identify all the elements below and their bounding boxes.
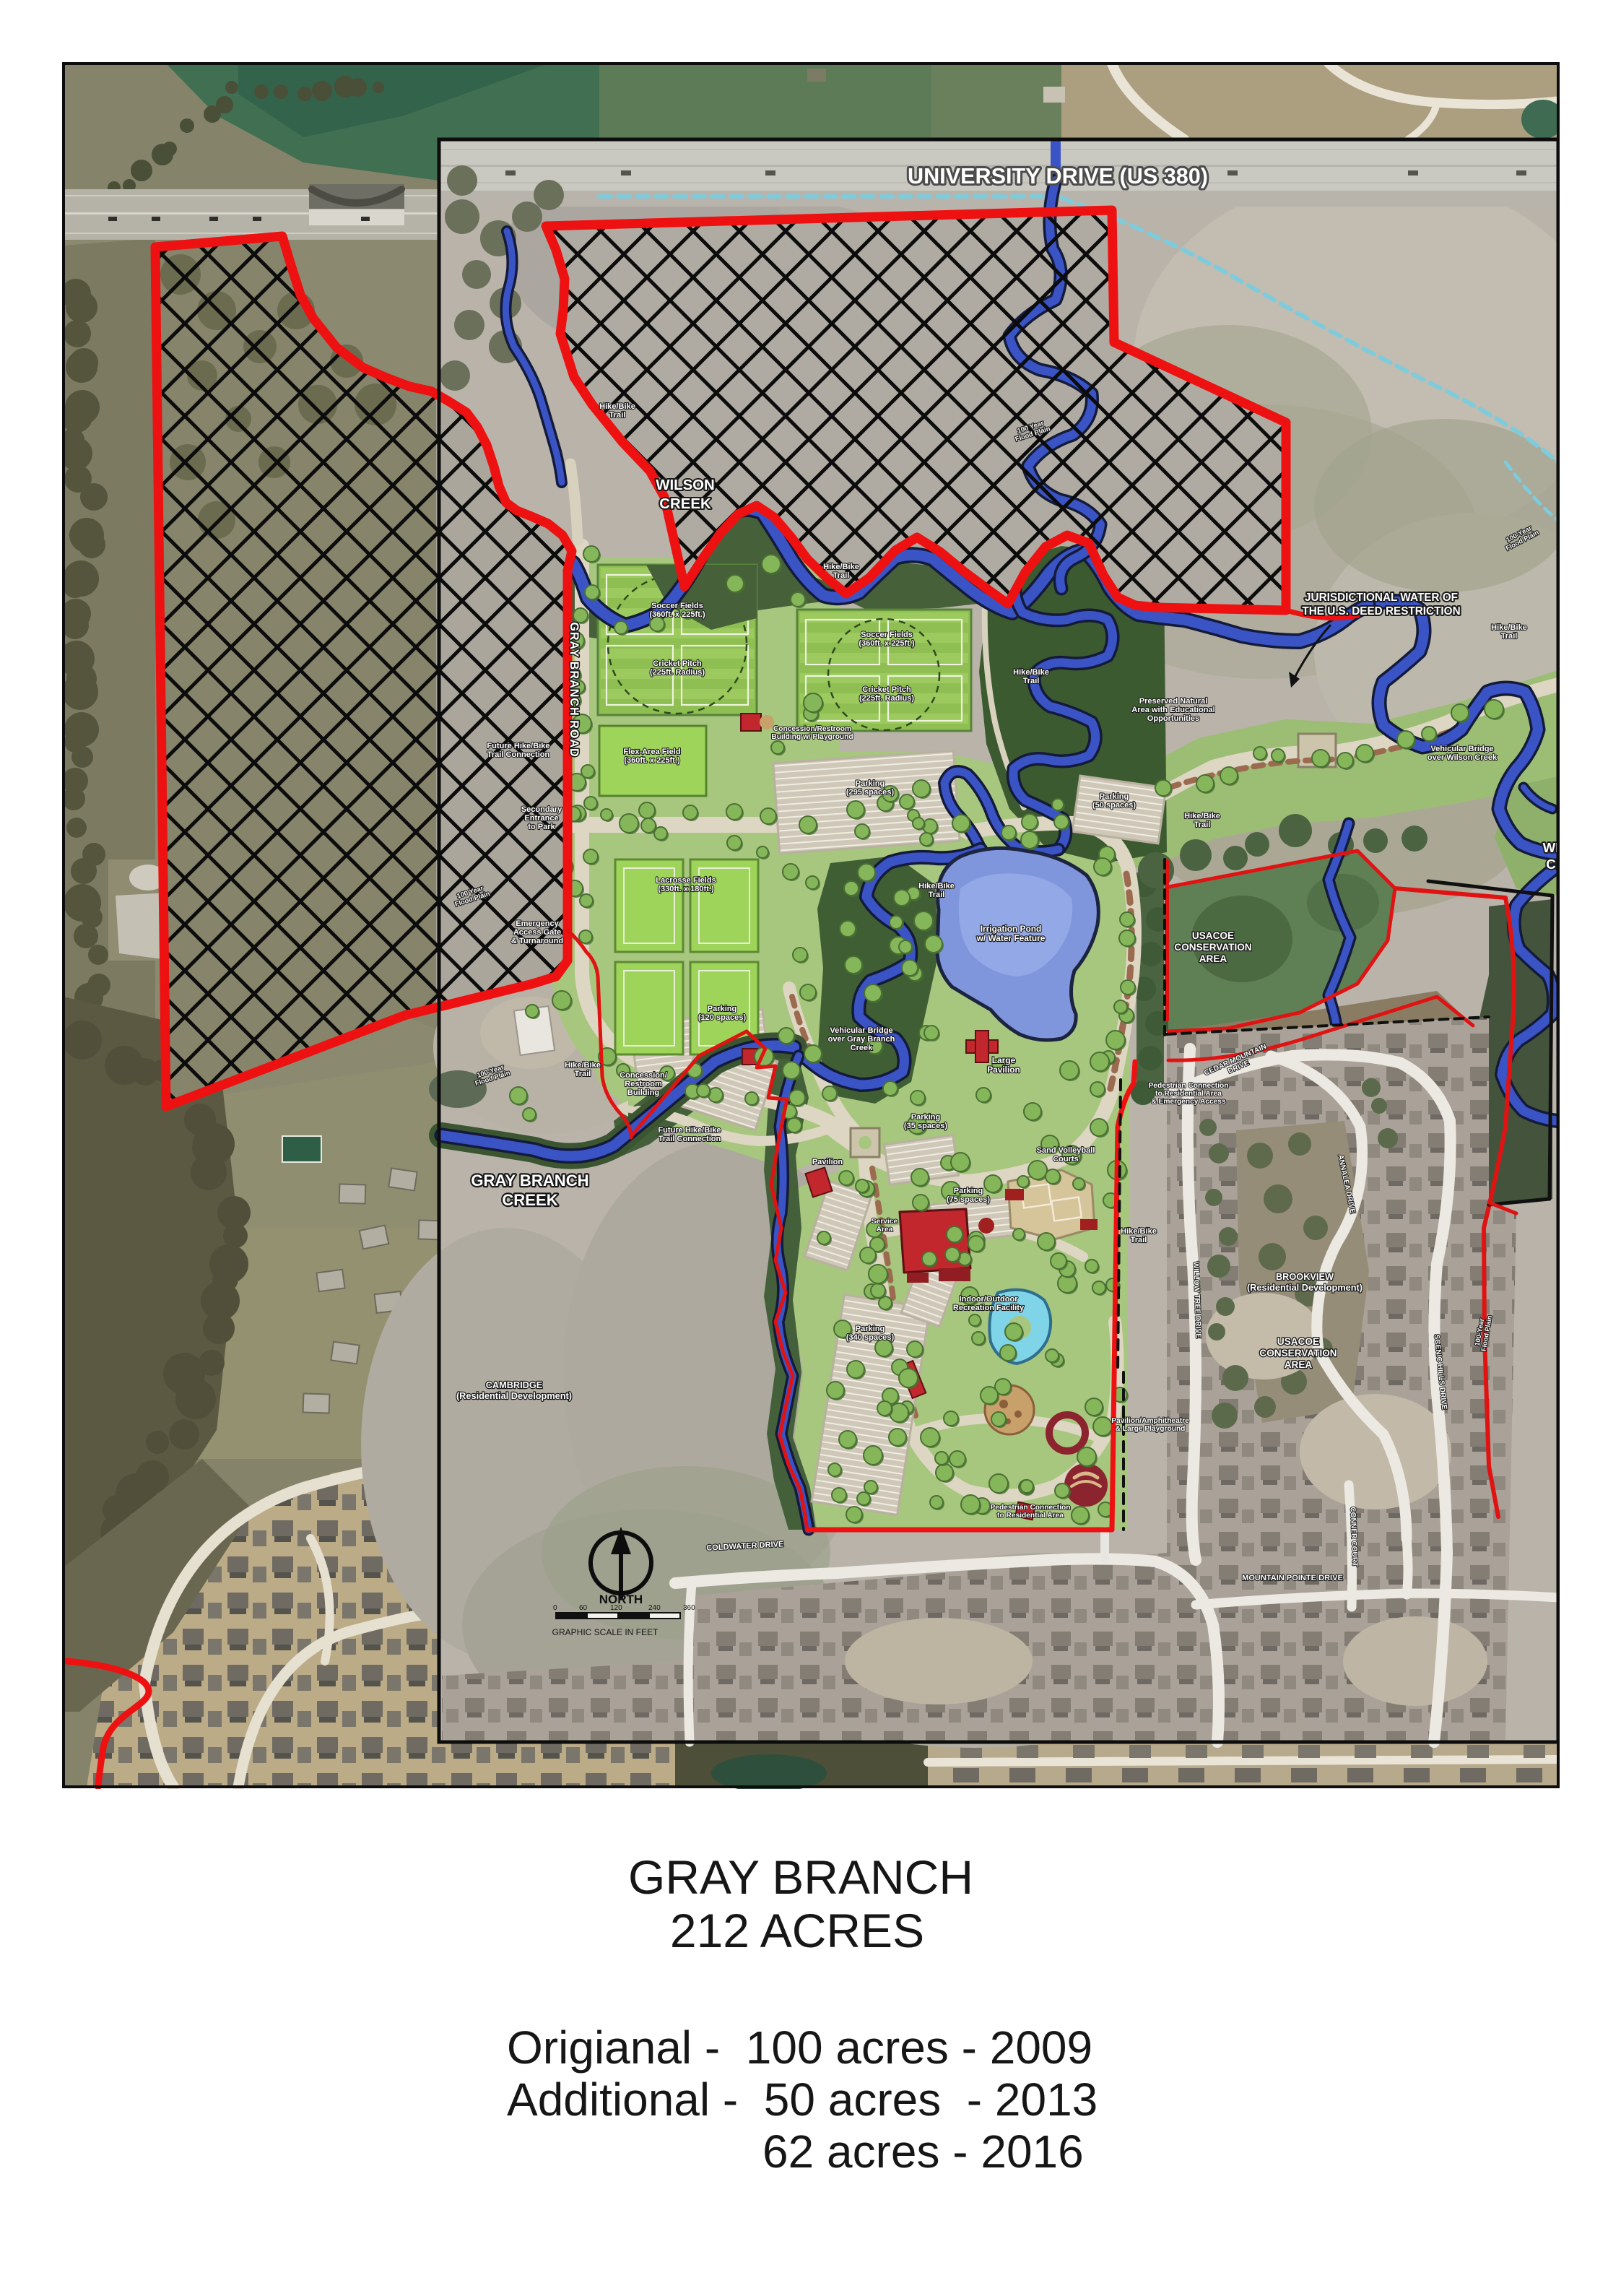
svg-text:60: 60: [579, 1604, 588, 1612]
svg-text:Origianal - 100 acres - 2009: Origianal - 100 acres - 2009: [507, 2022, 1092, 2074]
svg-text:MOUNTAIN POINTE DRIVE: MOUNTAIN POINTE DRIVE: [1242, 1574, 1343, 1582]
svg-text:Vehicular Bridgeover Wilson Cr: Vehicular Bridgeover Wilson Creek: [1427, 745, 1498, 762]
svg-text:Additional - 50 acres - 2013: Additional - 50 acres - 2013: [507, 2074, 1098, 2126]
svg-text:Irrigation Pondw/ Water Featur: Irrigation Pondw/ Water Feature: [976, 924, 1046, 943]
svg-text:GRAY BRANCH: GRAY BRANCH: [628, 1850, 973, 1904]
svg-text:GRAPHIC SCALE IN FEET: GRAPHIC SCALE IN FEET: [552, 1627, 659, 1637]
svg-text:212 ACRES: 212 ACRES: [670, 1904, 924, 1957]
svg-text:62 acres - 2016: 62 acres - 2016: [762, 2126, 1084, 2178]
svg-text:Soccer Fields(360ft. x 225ft.): Soccer Fields(360ft. x 225ft.): [859, 631, 915, 648]
svg-text:Future Hike/BikeTrail Connecti: Future Hike/BikeTrail Connection: [487, 742, 549, 759]
svg-text:Lacrosse Fields(330ft. x 180ft: Lacrosse Fields(330ft. x 180ft.): [656, 876, 716, 893]
svg-text:Pavilion/Amphitheatre& Large P: Pavilion/Amphitheatre& Large Playground: [1111, 1417, 1189, 1433]
svg-text:Cricket Pitch(225ft. Radius): Cricket Pitch(225ft. Radius): [650, 659, 705, 677]
svg-text:Pedestrian Connectionto Reside: Pedestrian Connectionto Residential Area…: [1149, 1082, 1229, 1106]
svg-text:Future Hike/BikeTrail Connecti: Future Hike/BikeTrail Connection: [658, 1126, 721, 1143]
svg-text:Flex-Area Field(360ft. x 225ft: Flex-Area Field(360ft. x 225ft.): [623, 748, 680, 765]
svg-text:0: 0: [553, 1604, 557, 1612]
svg-text:240: 240: [648, 1604, 661, 1612]
svg-text:Concession/RestroomBuilding w/: Concession/RestroomBuilding w/ Playgroun…: [771, 725, 853, 741]
svg-text:LargePavilion: LargePavilion: [987, 1055, 1020, 1075]
svg-text:Soccer Fields(360ft. x 225ft.): Soccer Fields(360ft. x 225ft.): [649, 602, 705, 619]
svg-text:UNIVERSITY DRIVE (US 380): UNIVERSITY DRIVE (US 380): [908, 164, 1208, 189]
svg-text:120: 120: [610, 1604, 622, 1612]
svg-text:360: 360: [683, 1604, 695, 1612]
svg-text:Pedestrian Connectionto Reside: Pedestrian Connectionto Residential Area: [991, 1504, 1071, 1520]
svg-text:EmergencyAccess Gate& Turnarou: EmergencyAccess Gate& Turnaround: [511, 919, 563, 945]
svg-text:Cricket Pitch(225ft. Radius): Cricket Pitch(225ft. Radius): [859, 685, 914, 703]
svg-text:Pavilion: Pavilion: [812, 1158, 843, 1166]
svg-text:Indoor/OutdoorRecreation Facil: Indoor/OutdoorRecreation Facility: [953, 1295, 1025, 1312]
svg-text:GRAY BRANCH ROAD: GRAY BRANCH ROAD: [568, 622, 581, 757]
